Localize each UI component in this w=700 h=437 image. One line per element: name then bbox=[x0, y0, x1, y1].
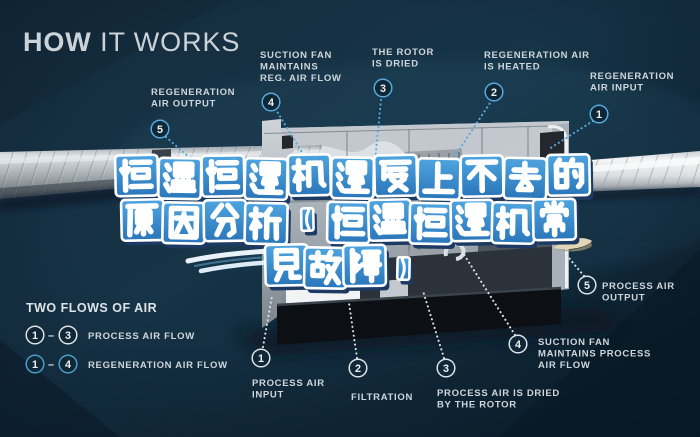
svg-text:PROCESS AIR FLOW: PROCESS AIR FLOW bbox=[88, 331, 195, 342]
svg-text:–: – bbox=[48, 359, 54, 371]
svg-text:TWO FLOWS OF AIR: TWO FLOWS OF AIR bbox=[26, 301, 157, 315]
svg-text:4: 4 bbox=[268, 97, 274, 109]
svg-text:1: 1 bbox=[32, 330, 38, 342]
svg-text:1: 1 bbox=[596, 109, 602, 121]
svg-text:3: 3 bbox=[65, 330, 71, 342]
svg-text:REGENERATION AIR FLOW: REGENERATION AIR FLOW bbox=[88, 360, 228, 371]
svg-text:1: 1 bbox=[32, 359, 38, 371]
svg-text:2: 2 bbox=[355, 363, 361, 375]
svg-text:4: 4 bbox=[515, 339, 521, 351]
svg-text:3: 3 bbox=[443, 363, 449, 375]
svg-text:FILTRATION: FILTRATION bbox=[351, 392, 413, 403]
svg-text:4: 4 bbox=[65, 359, 71, 371]
svg-text:HOW IT WORKS: HOW IT WORKS bbox=[23, 27, 240, 57]
svg-text:–: – bbox=[48, 330, 54, 342]
svg-text:3: 3 bbox=[380, 83, 386, 95]
svg-text:1: 1 bbox=[258, 353, 264, 365]
svg-text:2: 2 bbox=[491, 87, 497, 99]
svg-text:5: 5 bbox=[157, 124, 163, 136]
svg-text:5: 5 bbox=[584, 280, 590, 292]
